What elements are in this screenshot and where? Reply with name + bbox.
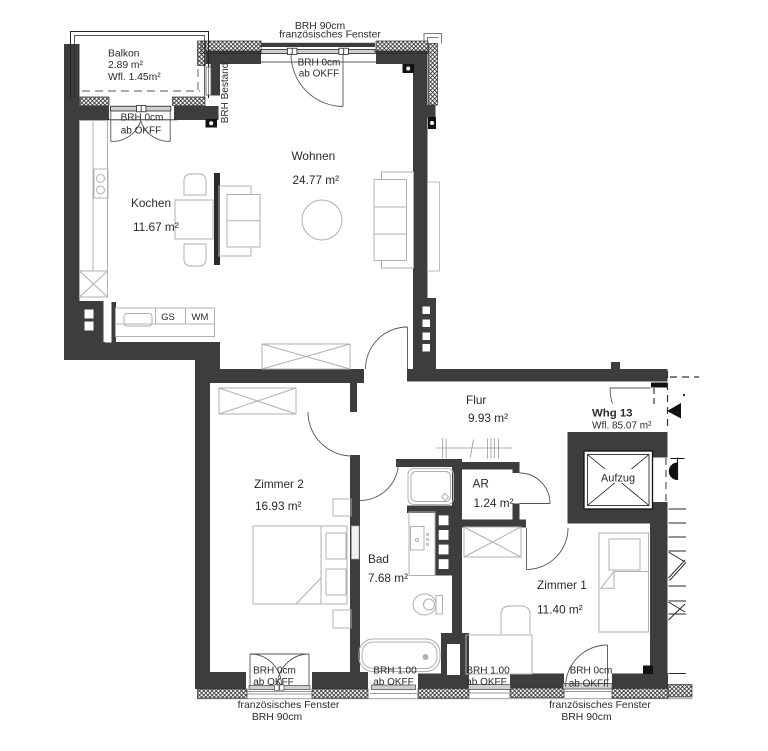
svg-text:BRH 0cm: BRH 0cm xyxy=(253,666,296,677)
svg-text:9.93 m²: 9.93 m² xyxy=(468,411,508,425)
svg-text:Aufzug: Aufzug xyxy=(601,473,635,485)
svg-text:Flur: Flur xyxy=(466,393,486,407)
svg-text:BRH Bestand: BRH Bestand xyxy=(220,63,231,124)
svg-text:Wfl. 1.45m²: Wfl. 1.45m² xyxy=(108,72,161,83)
svg-text:BRH 1.00: BRH 1.00 xyxy=(373,666,417,677)
svg-text:Balkon: Balkon xyxy=(108,49,140,60)
svg-text:BRH 1.00: BRH 1.00 xyxy=(466,666,510,677)
svg-text:französisches Fenster: französisches Fenster xyxy=(549,700,651,711)
svg-text:BRH 0cm: BRH 0cm xyxy=(570,666,613,677)
svg-text:ab OKFF: ab OKFF xyxy=(253,677,294,688)
svg-text:GS: GS xyxy=(161,312,175,323)
svg-text:französisches Fenster: französisches Fenster xyxy=(279,30,381,41)
svg-text:ab OKFF: ab OKFF xyxy=(121,126,162,137)
svg-text:WM: WM xyxy=(192,312,209,323)
svg-text:Zimmer 2: Zimmer 2 xyxy=(254,477,304,491)
svg-text:französisches Fenster: französisches Fenster xyxy=(238,700,340,711)
svg-text:Whg 13: Whg 13 xyxy=(592,408,633,420)
svg-text:Zimmer 1: Zimmer 1 xyxy=(537,578,587,592)
svg-text:ab OKFF: ab OKFF xyxy=(373,677,414,688)
svg-text:ab OKFF: ab OKFF xyxy=(466,677,507,688)
svg-text:BRH 90cm: BRH 90cm xyxy=(561,712,611,723)
svg-text:11.67 m²: 11.67 m² xyxy=(133,220,179,234)
svg-text:2.89 m²: 2.89 m² xyxy=(108,60,143,71)
svg-text:7.68 m²: 7.68 m² xyxy=(368,571,408,585)
svg-text:AR: AR xyxy=(473,477,489,491)
svg-text:BRH 0cm: BRH 0cm xyxy=(121,113,164,124)
svg-text:16.93 m²: 16.93 m² xyxy=(255,499,302,513)
svg-text:ab OKFF: ab OKFF xyxy=(299,69,340,80)
svg-text:1.24 m²: 1.24 m² xyxy=(474,496,514,510)
svg-text:BRH 90cm: BRH 90cm xyxy=(252,712,302,723)
svg-text:Bad: Bad xyxy=(368,552,389,566)
svg-text:ab OKFF: ab OKFF xyxy=(569,679,610,690)
svg-text:Wohnen: Wohnen xyxy=(292,149,336,163)
svg-text:24.77 m²: 24.77 m² xyxy=(293,173,340,187)
svg-text:Wfl. 85.07 m²: Wfl. 85.07 m² xyxy=(592,421,652,432)
svg-text:BRH 0cm: BRH 0cm xyxy=(298,58,341,69)
svg-text:Kochen: Kochen xyxy=(131,196,171,210)
svg-text:11.40 m²: 11.40 m² xyxy=(537,603,583,617)
